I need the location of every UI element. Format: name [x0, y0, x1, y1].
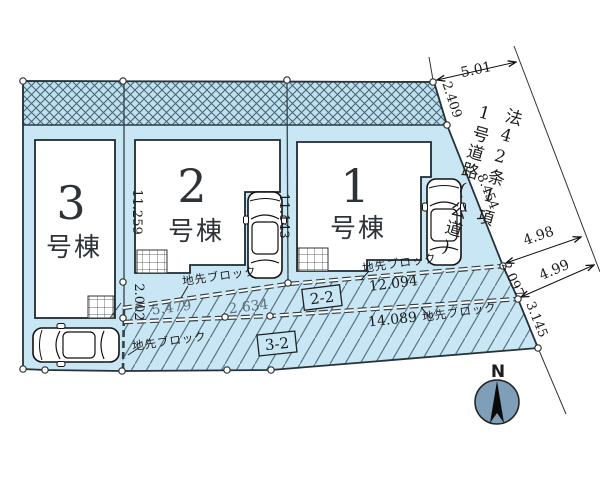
lot-3-number: 3	[56, 176, 85, 230]
porch-tiles-1	[298, 248, 328, 271]
dim-road-width-2: 4.99	[537, 257, 572, 284]
dim-lot32-upper: 11.259	[129, 189, 144, 235]
section-label-2-2: 2-2	[302, 285, 342, 310]
compass-n-label: N	[491, 362, 505, 382]
lot-2-suffix: 号棟	[168, 217, 224, 247]
dim-road-width-1: 4.98	[521, 224, 556, 249]
porch-tiles-3	[88, 296, 114, 318]
dim-lot21: 11.143	[276, 193, 291, 239]
site-plan-page: 3 号棟 2 号棟 1 号棟 法42条1項 1号道路(公道) 5.01 2.40…	[0, 0, 600, 482]
lot-3-suffix: 号棟	[46, 233, 102, 263]
car-lot-3	[33, 324, 119, 367]
section-text-2-2: 2-2	[309, 288, 335, 309]
lot-1-suffix: 号棟	[330, 214, 386, 244]
compass: N	[475, 362, 519, 424]
site-plan: 3 号棟 2 号棟 1 号棟 法42条1項 1号道路(公道) 5.01 2.40…	[0, 0, 600, 482]
porch-tiles-2	[137, 250, 167, 273]
crosshatch-band	[23, 81, 447, 125]
dim-lot32-lower: 2.002	[131, 283, 146, 320]
section-label-3-2: 3-2	[257, 331, 297, 356]
lot-2-number: 2	[177, 159, 206, 213]
dim-top: 5.01	[459, 59, 493, 81]
lot-1-number: 1	[340, 159, 369, 213]
section-text-3-2: 3-2	[264, 334, 290, 354]
